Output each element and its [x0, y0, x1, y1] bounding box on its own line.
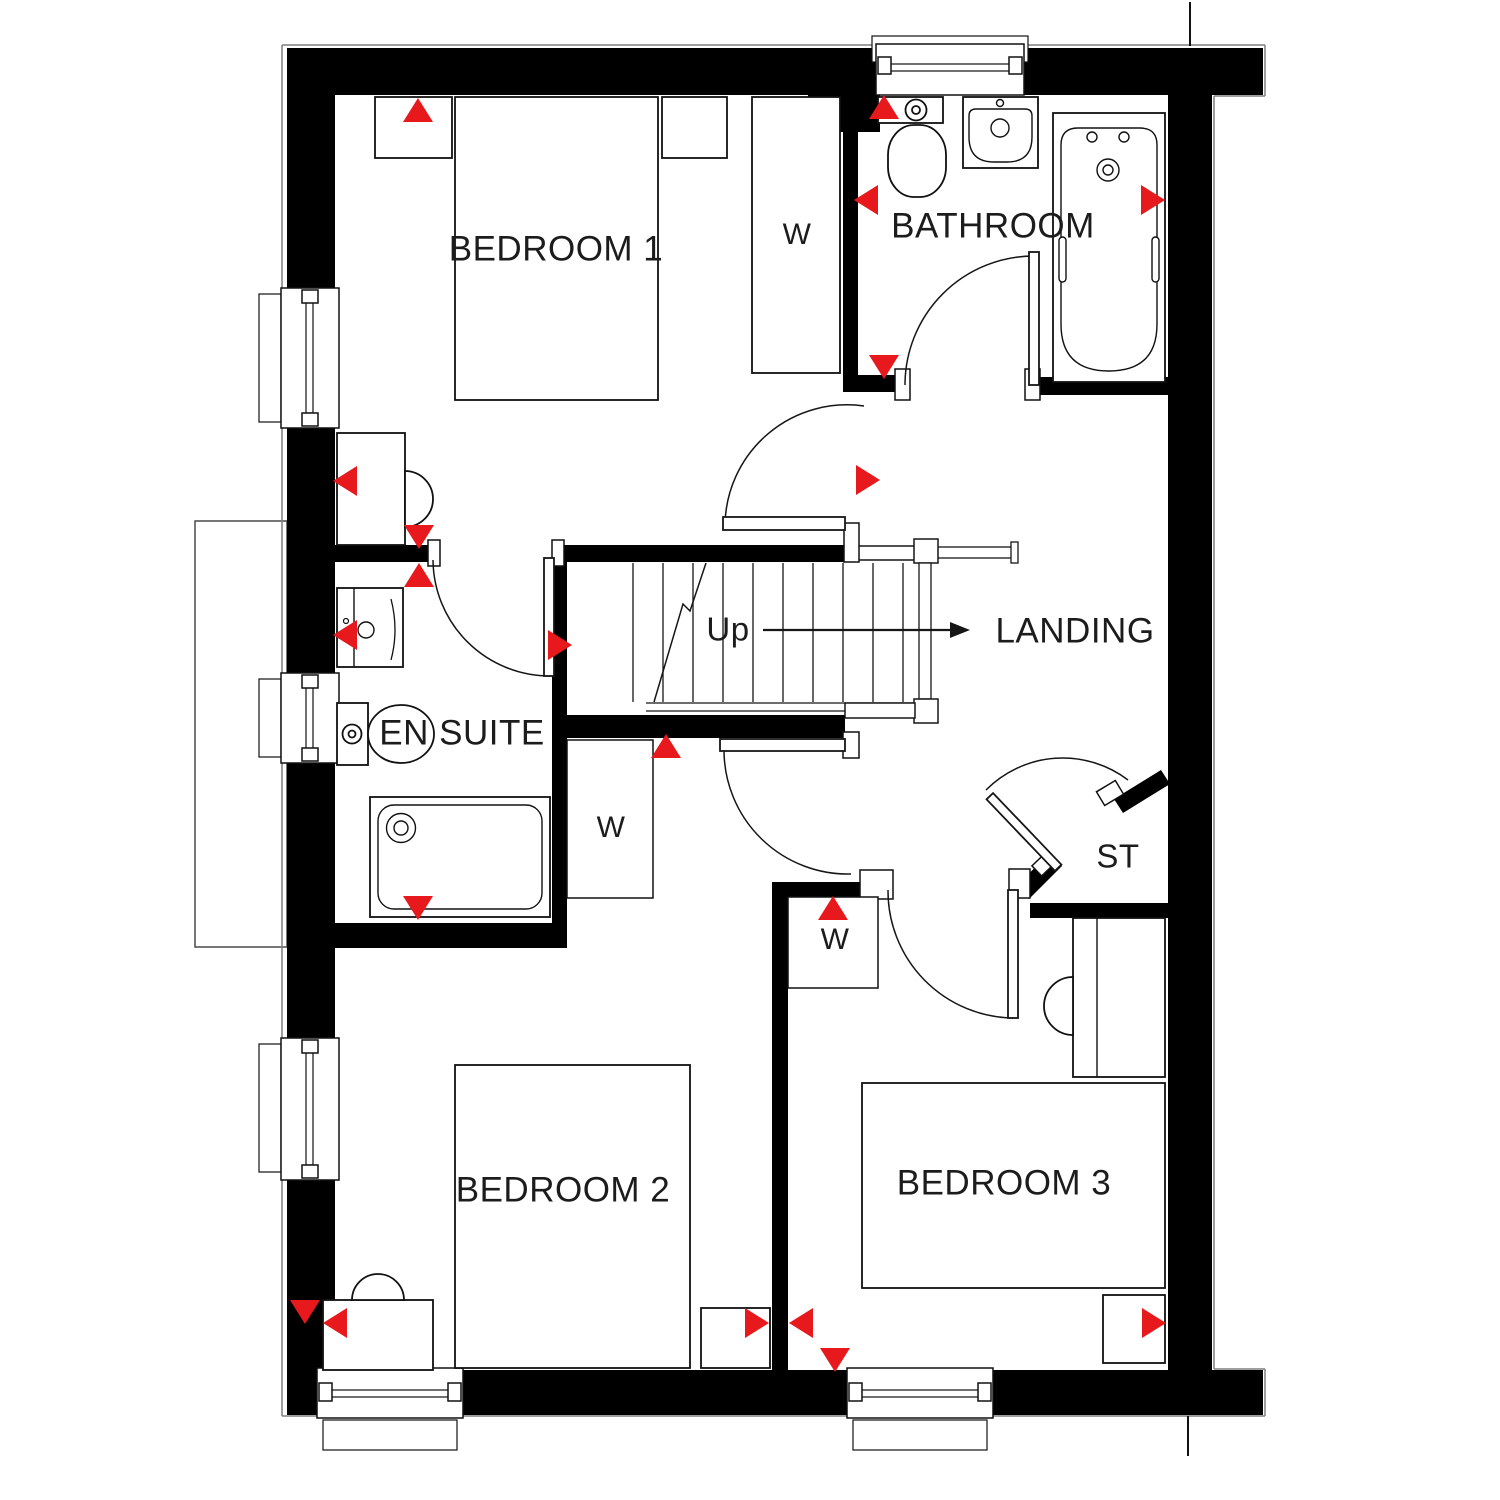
door-swing-bedroom2: [724, 751, 851, 874]
up-arrow-head: [950, 622, 970, 638]
newel-post: [914, 539, 938, 563]
window-sill: [853, 1420, 987, 1450]
window-cap: [1009, 57, 1022, 74]
label-wardrobe-bedroom-1: W: [783, 220, 812, 250]
label-bedroom-3: BEDROOM 3: [897, 1166, 1112, 1201]
label-wardrobe-bedroom-2: W: [597, 813, 626, 843]
bedside-table: [662, 97, 727, 158]
chair-bedroom2: [352, 1274, 404, 1300]
window-glazing: [306, 680, 313, 756]
window-cap: [302, 675, 318, 688]
window-sill: [259, 1044, 281, 1172]
wall-ensuite-south: [335, 923, 567, 948]
basin-bowl: [969, 109, 1032, 162]
landing-rail: [937, 547, 1013, 558]
jamb: [428, 540, 440, 566]
window-cap: [319, 1383, 332, 1401]
bed-bedroom2: [455, 1065, 690, 1368]
window-cap: [302, 748, 318, 761]
window-glazing: [855, 1390, 985, 1397]
desk-bedroom3: [1073, 918, 1165, 1077]
landing-rail-end: [1011, 542, 1018, 563]
chair-bedroom3: [1044, 977, 1073, 1035]
label-en-suite: EN SUITE: [379, 716, 544, 751]
wall-bathroom-bottom-left: [843, 375, 899, 392]
bedside-table: [701, 1308, 770, 1368]
window-cap: [849, 1383, 862, 1401]
newel-post: [914, 699, 938, 723]
jamb: [844, 523, 859, 562]
dresser-bedroom2: [323, 1300, 433, 1370]
toilet-bowl: [888, 125, 946, 197]
label-landing: LANDING: [995, 614, 1154, 649]
wall-bedroom-divider: [772, 882, 788, 1370]
bathtub-handle: [1152, 237, 1159, 282]
stair-break-line: [654, 563, 706, 702]
window-cap: [302, 413, 318, 426]
wall-top: [287, 48, 1263, 95]
wall-stair-top: [563, 545, 845, 562]
label-wardrobe-bedroom-3: W: [821, 925, 850, 955]
window-glazing: [884, 64, 1016, 71]
wall-store-bottom: [1030, 903, 1168, 918]
label-bedroom-1: BEDROOM 1: [449, 232, 664, 267]
door-swing-bedroom1: [725, 405, 864, 524]
label-stairs-up: Up: [706, 613, 749, 646]
stairs: [633, 539, 1018, 723]
red-triangle-marker-down: [820, 1348, 850, 1372]
door-swing-ensuite: [433, 560, 550, 676]
door-leaf-store: [987, 793, 1062, 871]
window-glazing: [306, 295, 313, 413]
door-leaf-bedroom2: [720, 739, 845, 751]
door-swing-bedroom3: [888, 890, 1013, 1018]
window-glazing: [306, 1045, 313, 1165]
stair-treads: [633, 563, 903, 702]
window-cap: [978, 1383, 991, 1401]
floor-plan: BEDROOM 1BATHROOMWLANDINGUpEN SUITEWSTWB…: [0, 0, 1500, 1500]
label-bedroom-2: BEDROOM 2: [456, 1173, 671, 1208]
ensuite-toilet-flush-dot: [349, 731, 356, 738]
window-cap: [878, 57, 891, 74]
window-cap: [302, 290, 318, 303]
red-triangle-marker-left: [789, 1308, 813, 1338]
floor-plan-drawing: [0, 0, 1500, 1500]
chair-bedroom1: [405, 471, 433, 527]
window-cap: [448, 1383, 461, 1401]
wall-bathroom-left: [843, 95, 858, 392]
door-leaf-bathroom: [1029, 252, 1039, 385]
window-sill: [259, 679, 281, 757]
wall-stair-bottom: [563, 715, 845, 738]
window-glazing: [325, 1390, 455, 1397]
window-sill: [259, 294, 281, 422]
label-bathroom: BATHROOM: [891, 209, 1095, 244]
window-cap: [302, 1040, 318, 1053]
jamb: [895, 369, 910, 400]
toilet-flush-dot: [912, 106, 920, 114]
window-cap: [302, 1165, 318, 1178]
label-store: ST: [1096, 840, 1139, 873]
window-sill: [323, 1420, 457, 1450]
balustrade-bottom-rail: [845, 703, 915, 718]
door-leaf-bedroom3: [1008, 890, 1018, 1018]
door-leaf-bedroom1: [723, 517, 845, 530]
wall-right: [1168, 95, 1212, 1415]
red-triangle-marker-right: [856, 465, 880, 495]
wall-bedroom1-south: [335, 545, 428, 562]
door-swing-bathroom: [905, 256, 1034, 385]
